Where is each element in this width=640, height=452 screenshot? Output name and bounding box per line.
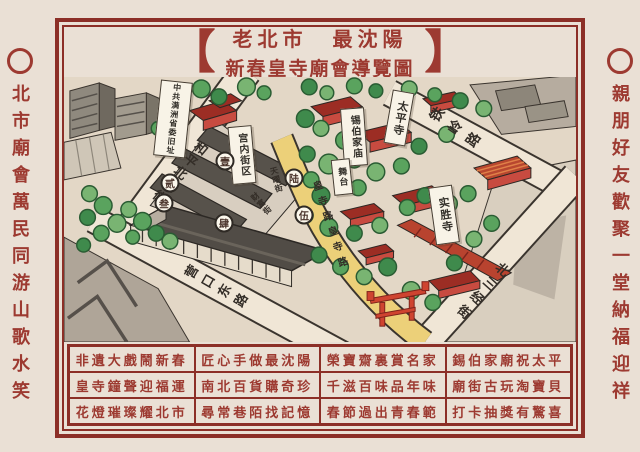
scroll-banner-label: 太平寺	[383, 90, 414, 147]
left-bracket-ornament: 【	[169, 30, 215, 74]
street-name-label: 北三经街	[451, 259, 512, 324]
left-slogan-text: 北市廟會萬民同游山歌水笑	[11, 84, 29, 408]
legend-cell: 打卡抽獎有驚喜	[447, 399, 571, 423]
street-name-label: 营口东路	[182, 263, 254, 312]
temple-fair-map-poster: 北市廟會萬民同游山歌水笑 親朋好友歡聚一堂納福迎祥 【 老北市 最沈陽 新春皇寺…	[0, 0, 640, 452]
right-slogan-text: 親朋好友歡聚一堂納福迎祥	[611, 84, 629, 408]
ring-ornament	[7, 48, 33, 74]
street-name-label: 财富街	[249, 191, 273, 216]
numbered-spot-marker: 贰	[161, 174, 180, 193]
street-name-label: 铁岭路	[427, 104, 489, 153]
map-labels-layer: 和平北大街铁岭路北三经街营口东路皇寺路皇寺路天曜街财富街中共满洲省委旧址宫内街区…	[64, 77, 576, 342]
numbered-spot-marker: 叁	[155, 194, 174, 213]
legend-cell: 匠心手做最沈陽	[196, 347, 320, 371]
map-frame-inner: 【 老北市 最沈陽 新春皇寺廟會導覽圖 】	[62, 25, 578, 431]
illustrated-map: 和平北大街铁岭路北三经街营口东路皇寺路皇寺路天曜街财富街中共满洲省委旧址宫内街区…	[64, 77, 576, 342]
legend-cell: 南北百貨購奇珍	[196, 373, 320, 397]
legend-cell: 錫伯家廟祝太平	[447, 347, 571, 371]
legend-cell: 春節過出青春範	[321, 399, 445, 423]
scroll-banner-label: 中共满洲省委旧址	[153, 80, 193, 159]
street-name-label: 天曜街	[269, 166, 284, 194]
legend-cell: 非遺大戲鬧新春	[70, 347, 194, 371]
legend-cell: 榮寶齋裏賞名家	[321, 347, 445, 371]
ring-ornament	[607, 48, 633, 74]
legend-cell: 皇寺鐘聲迎福運	[70, 373, 194, 397]
left-slogan-column: 北市廟會萬民同游山歌水笑	[5, 48, 35, 408]
map-frame: 【 老北市 最沈陽 新春皇寺廟會導覽圖 】	[55, 18, 585, 438]
scroll-banner-label: 舞台	[331, 158, 354, 196]
title-block: 【 老北市 最沈陽 新春皇寺廟會導覽圖 】	[64, 27, 576, 77]
legend-cell: 千滋百味品年味	[321, 373, 445, 397]
legend-cell: 廟街古玩淘寶貝	[447, 373, 571, 397]
numbered-spot-marker: 伍	[295, 206, 314, 225]
numbered-spot-marker: 壹	[216, 152, 235, 171]
page-title: 老北市 最沈陽 新春皇寺廟會導覽圖	[225, 23, 414, 81]
legend-table: 非遺大戲鬧新春匠心手做最沈陽榮寶齋裏賞名家錫伯家廟祝太平皇寺鐘聲迎福運南北百貨購…	[67, 344, 573, 426]
title-line1: 老北市 最沈陽	[225, 23, 414, 52]
legend-cell: 花燈璀璨耀北市	[70, 399, 194, 423]
scroll-banner-label: 实胜寺	[428, 185, 460, 246]
numbered-spot-marker: 肆	[215, 214, 234, 233]
right-bracket-ornament: 】	[425, 30, 471, 74]
numbered-spot-marker: 陆	[285, 169, 304, 188]
legend-cell: 尋常巷陌找記憶	[196, 399, 320, 423]
right-slogan-column: 親朋好友歡聚一堂納福迎祥	[605, 48, 635, 408]
